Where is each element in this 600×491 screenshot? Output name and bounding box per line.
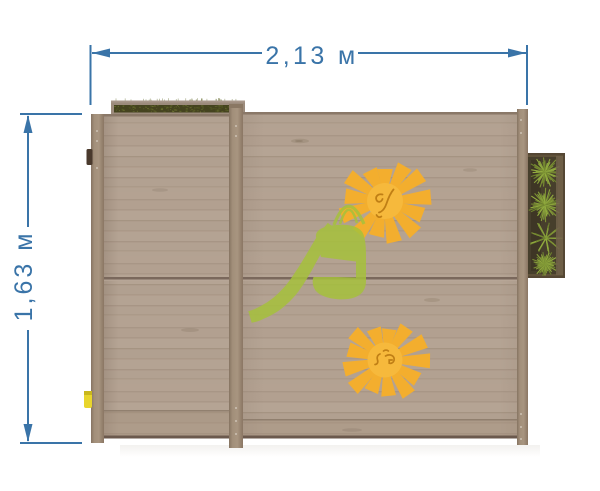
svg-text:1,63 м: 1,63 м [10, 231, 38, 322]
svg-text:2,13 м: 2,13 м [265, 42, 358, 70]
